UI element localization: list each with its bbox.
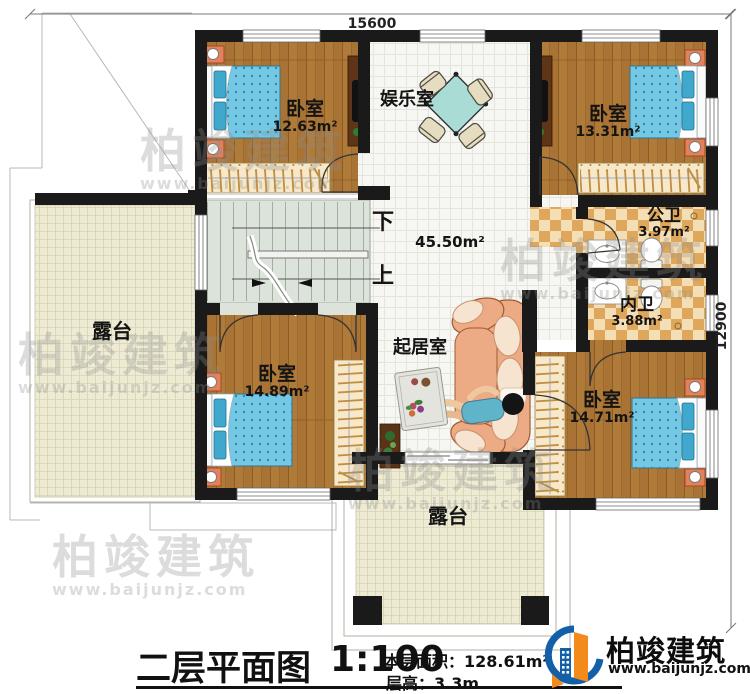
label-bedroom-top-right: 卧室 13.31m² [558, 104, 658, 141]
coffee-table [394, 367, 448, 431]
terrace-bottom-floor [356, 464, 544, 624]
toilet-public [641, 238, 662, 269]
terrace-slider-door [405, 452, 490, 464]
label-public-bath: 公卫 3.97m² [629, 207, 699, 241]
label-private-bath: 内卫 3.88m² [602, 296, 672, 330]
label-stairs-down: 下 [372, 211, 394, 236]
floorplan-page: 柏竣建筑www.baijunjz.com 柏竣建筑www.baijunjz.co… [0, 0, 750, 694]
dimension-top: 15600 [322, 16, 422, 32]
label-bedroom-bottom-right: 卧室 14.71m² [552, 390, 652, 427]
floor-height: 层高：3.3m [386, 670, 479, 694]
terrace-column [353, 596, 382, 625]
plan-title: 二层平面图 [136, 640, 311, 691]
stair-void-rail [202, 193, 360, 200]
dimension-right: 12900 [714, 291, 730, 361]
label-stairs-up: 上 [372, 265, 394, 290]
company-logo-icon [540, 624, 604, 690]
terrace-column [521, 596, 549, 625]
label-living: 起居室 [393, 338, 447, 358]
company-website: www.baijunjz.com [608, 661, 750, 677]
stairs [202, 200, 380, 314]
label-bedroom-top-left: 卧室 12.63m² [250, 99, 360, 136]
label-bedroom-bottom-left: 卧室 14.89m² [227, 364, 327, 401]
label-terrace-bottom: 露台 [428, 505, 468, 527]
label-terrace-left: 露台 [92, 320, 132, 342]
bed-bottom-left [203, 394, 292, 466]
label-entertainment: 娱乐室 [380, 90, 434, 110]
terrace-left-floor [35, 205, 195, 497]
label-hall-area: 45.50m² [410, 234, 490, 251]
floor-area: 本层面积：128.61m² [384, 648, 549, 672]
